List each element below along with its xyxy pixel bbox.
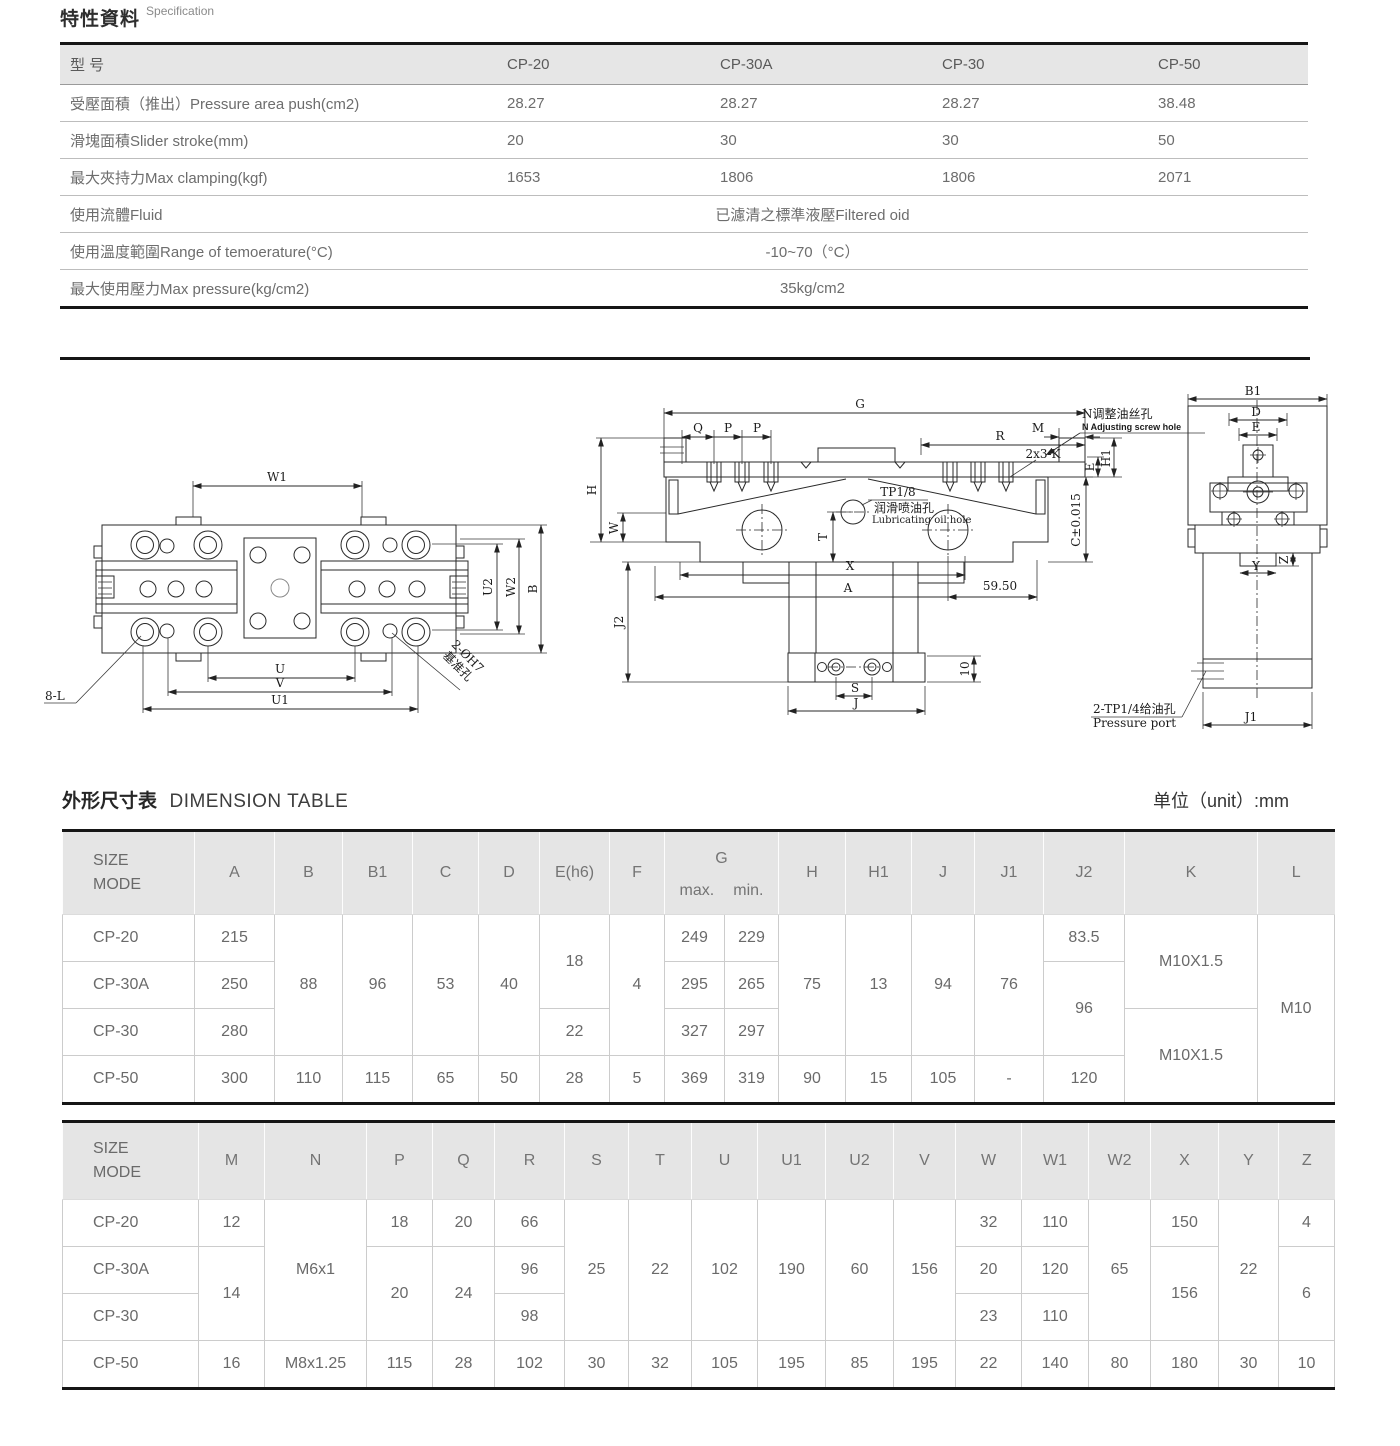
callout-lub-zh: 润滑喷油孔 bbox=[874, 501, 934, 515]
row-name: CP-50 bbox=[63, 1341, 199, 1389]
dimension-table-2: SIZE MODE M N P Q R S T U U1 U2 V W W1 W… bbox=[62, 1120, 1335, 1390]
header-j: J bbox=[912, 831, 975, 915]
header-f: F bbox=[610, 831, 665, 915]
dim-label-h1: H1 bbox=[1099, 449, 1113, 467]
table-row: 最大夾持力Max clamping(kgf) 1653 1806 1806 20… bbox=[60, 159, 1308, 196]
row-name: CP-30A bbox=[63, 1247, 199, 1294]
spec-value: 38.48 bbox=[1148, 85, 1308, 122]
header-j1: J1 bbox=[975, 831, 1044, 915]
unit-label: 单位（unit）:mm bbox=[1153, 787, 1334, 813]
spec-value: 1806 bbox=[932, 159, 1148, 196]
dim-label-x: X bbox=[846, 559, 855, 573]
dim-label-5950: 59.50 bbox=[983, 579, 1017, 593]
dim-label-u1: U1 bbox=[271, 693, 289, 707]
spec-section-title: 特性資料 Specification bbox=[60, 4, 214, 31]
section-divider bbox=[60, 357, 1310, 360]
dim-label-u: U bbox=[275, 662, 285, 676]
drawing-top-view: W1 U2 W2 B U V U1 8-L 2-ØH7 基准孔 bbox=[44, 470, 547, 713]
spec-span-value: -10~70（°C） bbox=[497, 233, 1308, 270]
callout-lub-en: Lubricating oil hole bbox=[872, 515, 972, 526]
bolt-hole-icons bbox=[131, 531, 430, 646]
spec-value: 2071 bbox=[1148, 159, 1308, 196]
dim-label-j1: J1 bbox=[1243, 710, 1257, 724]
dim-label-c: C±0.015 bbox=[1069, 493, 1083, 547]
dim-label-h: H bbox=[585, 485, 599, 495]
dim-label-a: A bbox=[843, 581, 853, 595]
dimension-section-header: 外形尺寸表 DIMENSION TABLE 单位（unit）:mm bbox=[62, 786, 1334, 813]
table-header-row: SIZE MODE M N P Q R S T U U1 U2 V W W1 W… bbox=[63, 1122, 1335, 1200]
spec-row-label: 最大使用壓力Max pressure(kg/cm2) bbox=[60, 270, 497, 308]
header-u1: U1 bbox=[758, 1122, 826, 1200]
spec-row-label: 使用溫度範圍Range of temoerature(°C) bbox=[60, 233, 497, 270]
header-n: N bbox=[265, 1122, 367, 1200]
table-row: 受壓面積（推出）Pressure area push(cm2) 28.27 28… bbox=[60, 85, 1308, 122]
table-row: CP-20 215 88 96 53 40 18 4 249 229 75 13… bbox=[63, 915, 1335, 962]
row-name: CP-30 bbox=[63, 1009, 195, 1056]
header-g: G max. min. bbox=[665, 831, 779, 915]
header-l: L bbox=[1258, 831, 1335, 915]
header-u: U bbox=[692, 1122, 758, 1200]
spec-row-label: 使用流體Fluid bbox=[60, 196, 497, 233]
header-h: H bbox=[779, 831, 846, 915]
dim-label-p1: P bbox=[724, 421, 732, 435]
callout-8l: 8-L bbox=[45, 689, 65, 703]
spec-header-cp50: CP-50 bbox=[1148, 44, 1308, 85]
spec-row-label: 滑塊面積Slider stroke(mm) bbox=[60, 122, 497, 159]
screw-hole-icons bbox=[1211, 447, 1305, 527]
spec-value: 28.27 bbox=[710, 85, 932, 122]
callout-adj-en: N Adjusting screw hole bbox=[1082, 422, 1181, 432]
header-k: K bbox=[1125, 831, 1258, 915]
spec-value: 28.27 bbox=[932, 85, 1148, 122]
dim-label-y: Y bbox=[1251, 559, 1261, 573]
header-size-mode: SIZE MODE bbox=[63, 831, 195, 915]
dim-label-w2: W2 bbox=[504, 577, 518, 597]
header-t: T bbox=[629, 1122, 692, 1200]
spec-header-cp30a: CP-30A bbox=[710, 44, 932, 85]
header-m: M bbox=[199, 1122, 265, 1200]
dim-label-z: Z bbox=[1277, 556, 1291, 564]
row-name: CP-30A bbox=[63, 962, 195, 1009]
dim-label-q: Q bbox=[693, 421, 703, 435]
header-e: E(h6) bbox=[540, 831, 610, 915]
spec-value: 20 bbox=[497, 122, 710, 159]
spec-title-en: Specification bbox=[146, 4, 214, 18]
header-x: X bbox=[1151, 1122, 1219, 1200]
callout-port-zh: 2-TP1/4给油孔 bbox=[1093, 702, 1176, 716]
dim-label-p2: P bbox=[753, 421, 761, 435]
dim-label-w: W bbox=[607, 521, 621, 534]
header-j2: J2 bbox=[1044, 831, 1125, 915]
header-c: C bbox=[413, 831, 479, 915]
row-name: CP-50 bbox=[63, 1056, 195, 1104]
dim-label-g: G bbox=[855, 397, 865, 411]
spec-span-value: 35kg/cm2 bbox=[497, 270, 1308, 308]
table-row: CP-50 16 M8x1.25 115 28 102 30 32 105 19… bbox=[63, 1341, 1335, 1389]
table-row: 滑塊面積Slider stroke(mm) 20 30 30 50 bbox=[60, 122, 1308, 159]
spec-value: 28.27 bbox=[497, 85, 710, 122]
header-w: W bbox=[956, 1122, 1022, 1200]
spec-row-label: 最大夾持力Max clamping(kgf) bbox=[60, 159, 497, 196]
header-q: Q bbox=[433, 1122, 495, 1200]
dim-label-v: V bbox=[275, 676, 285, 690]
spec-value: 30 bbox=[710, 122, 932, 159]
spec-table: 型 号 CP-20 CP-30A CP-30 CP-50 受壓面積（推出）Pre… bbox=[60, 42, 1308, 309]
dim-label-d: D bbox=[1251, 405, 1261, 419]
dim-label-j2: J2 bbox=[612, 616, 626, 630]
technical-drawings: W1 U2 W2 B U V U1 8-L 2-ØH7 基准孔 bbox=[0, 385, 1400, 770]
header-w2: W2 bbox=[1089, 1122, 1151, 1200]
spec-header-cp30: CP-30 bbox=[932, 44, 1148, 85]
spec-value: 50 bbox=[1148, 122, 1308, 159]
spec-value: 1653 bbox=[497, 159, 710, 196]
dim-label-e: E bbox=[1083, 463, 1097, 472]
dim-label-e2: E bbox=[1252, 420, 1261, 434]
callout-adj-zh: N调整油丝孔 bbox=[1082, 406, 1153, 421]
header-r: R bbox=[495, 1122, 565, 1200]
dim-label-r: R bbox=[995, 429, 1005, 443]
table-row: CP-20 12 M6x1 18 20 66 25 22 102 190 60 … bbox=[63, 1200, 1335, 1247]
callout-tp18: TP1/8 bbox=[880, 485, 915, 499]
header-p: P bbox=[367, 1122, 433, 1200]
table-row: 使用流體Fluid 已濾清之標準液壓Filtered oid bbox=[60, 196, 1308, 233]
header-size-mode: SIZE MODE bbox=[63, 1122, 199, 1200]
spec-header-row: 型 号 CP-20 CP-30A CP-30 CP-50 bbox=[60, 44, 1308, 85]
dim-label-u2: U2 bbox=[481, 578, 495, 596]
dimension-table-1: SIZE MODE A B B1 C D E(h6) F G max. min.… bbox=[62, 829, 1335, 1105]
spec-row-label: 受壓面積（推出）Pressure area push(cm2) bbox=[60, 85, 497, 122]
dim-label-b: B bbox=[526, 584, 540, 593]
table-row: 使用溫度範圍Range of temoerature(°C) -10~70（°C… bbox=[60, 233, 1308, 270]
header-u2: U2 bbox=[826, 1122, 894, 1200]
header-b: B bbox=[275, 831, 343, 915]
table-row: CP-30 280 22 327 297 M10X1.5 bbox=[63, 1009, 1335, 1056]
spec-header-cp20: CP-20 bbox=[497, 44, 710, 85]
spec-value: 1806 bbox=[710, 159, 932, 196]
header-y: Y bbox=[1219, 1122, 1279, 1200]
dim-label-b1: B1 bbox=[1245, 385, 1261, 398]
dim-label-m: M bbox=[1032, 421, 1044, 435]
table-row: 最大使用壓力Max pressure(kg/cm2) 35kg/cm2 bbox=[60, 270, 1308, 308]
header-z: Z bbox=[1279, 1122, 1335, 1200]
header-h1: H1 bbox=[846, 831, 912, 915]
row-name: CP-20 bbox=[63, 1200, 199, 1247]
dimension-title-en: DIMENSION TABLE bbox=[169, 791, 348, 812]
header-a: A bbox=[195, 831, 275, 915]
dim-label-10: 10 bbox=[958, 661, 972, 676]
table-header-row: SIZE MODE A B B1 C D E(h6) F G max. min.… bbox=[63, 831, 1335, 915]
callout-2x3k: 2x3-K bbox=[1025, 447, 1061, 461]
dim-label-s: S bbox=[851, 681, 859, 695]
spec-title-zh: 特性資料 bbox=[60, 4, 140, 31]
dim-label-t: T bbox=[816, 533, 830, 541]
spec-value: 30 bbox=[932, 122, 1148, 159]
header-d: D bbox=[479, 831, 540, 915]
callout-port-en: Pressure port bbox=[1093, 716, 1176, 730]
header-s: S bbox=[565, 1122, 629, 1200]
spec-span-value: 已濾清之標準液壓Filtered oid bbox=[497, 196, 1308, 233]
dimension-title-zh: 外形尺寸表 bbox=[62, 791, 157, 812]
drawing-side-view: B1 D E Z Y J1 bbox=[1091, 385, 1327, 730]
row-name: CP-30 bbox=[63, 1294, 199, 1341]
dim-label-j: J bbox=[852, 696, 859, 710]
drawing-front-view: TP1/8 润滑喷油孔 Lubricating oil hole G Q P P… bbox=[585, 397, 1205, 715]
header-b1: B1 bbox=[343, 831, 413, 915]
dim-label-w1: W1 bbox=[267, 470, 287, 484]
row-name: CP-20 bbox=[63, 915, 195, 962]
header-v: V bbox=[894, 1122, 956, 1200]
header-w1: W1 bbox=[1022, 1122, 1089, 1200]
spec-header-model: 型 号 bbox=[60, 44, 497, 85]
